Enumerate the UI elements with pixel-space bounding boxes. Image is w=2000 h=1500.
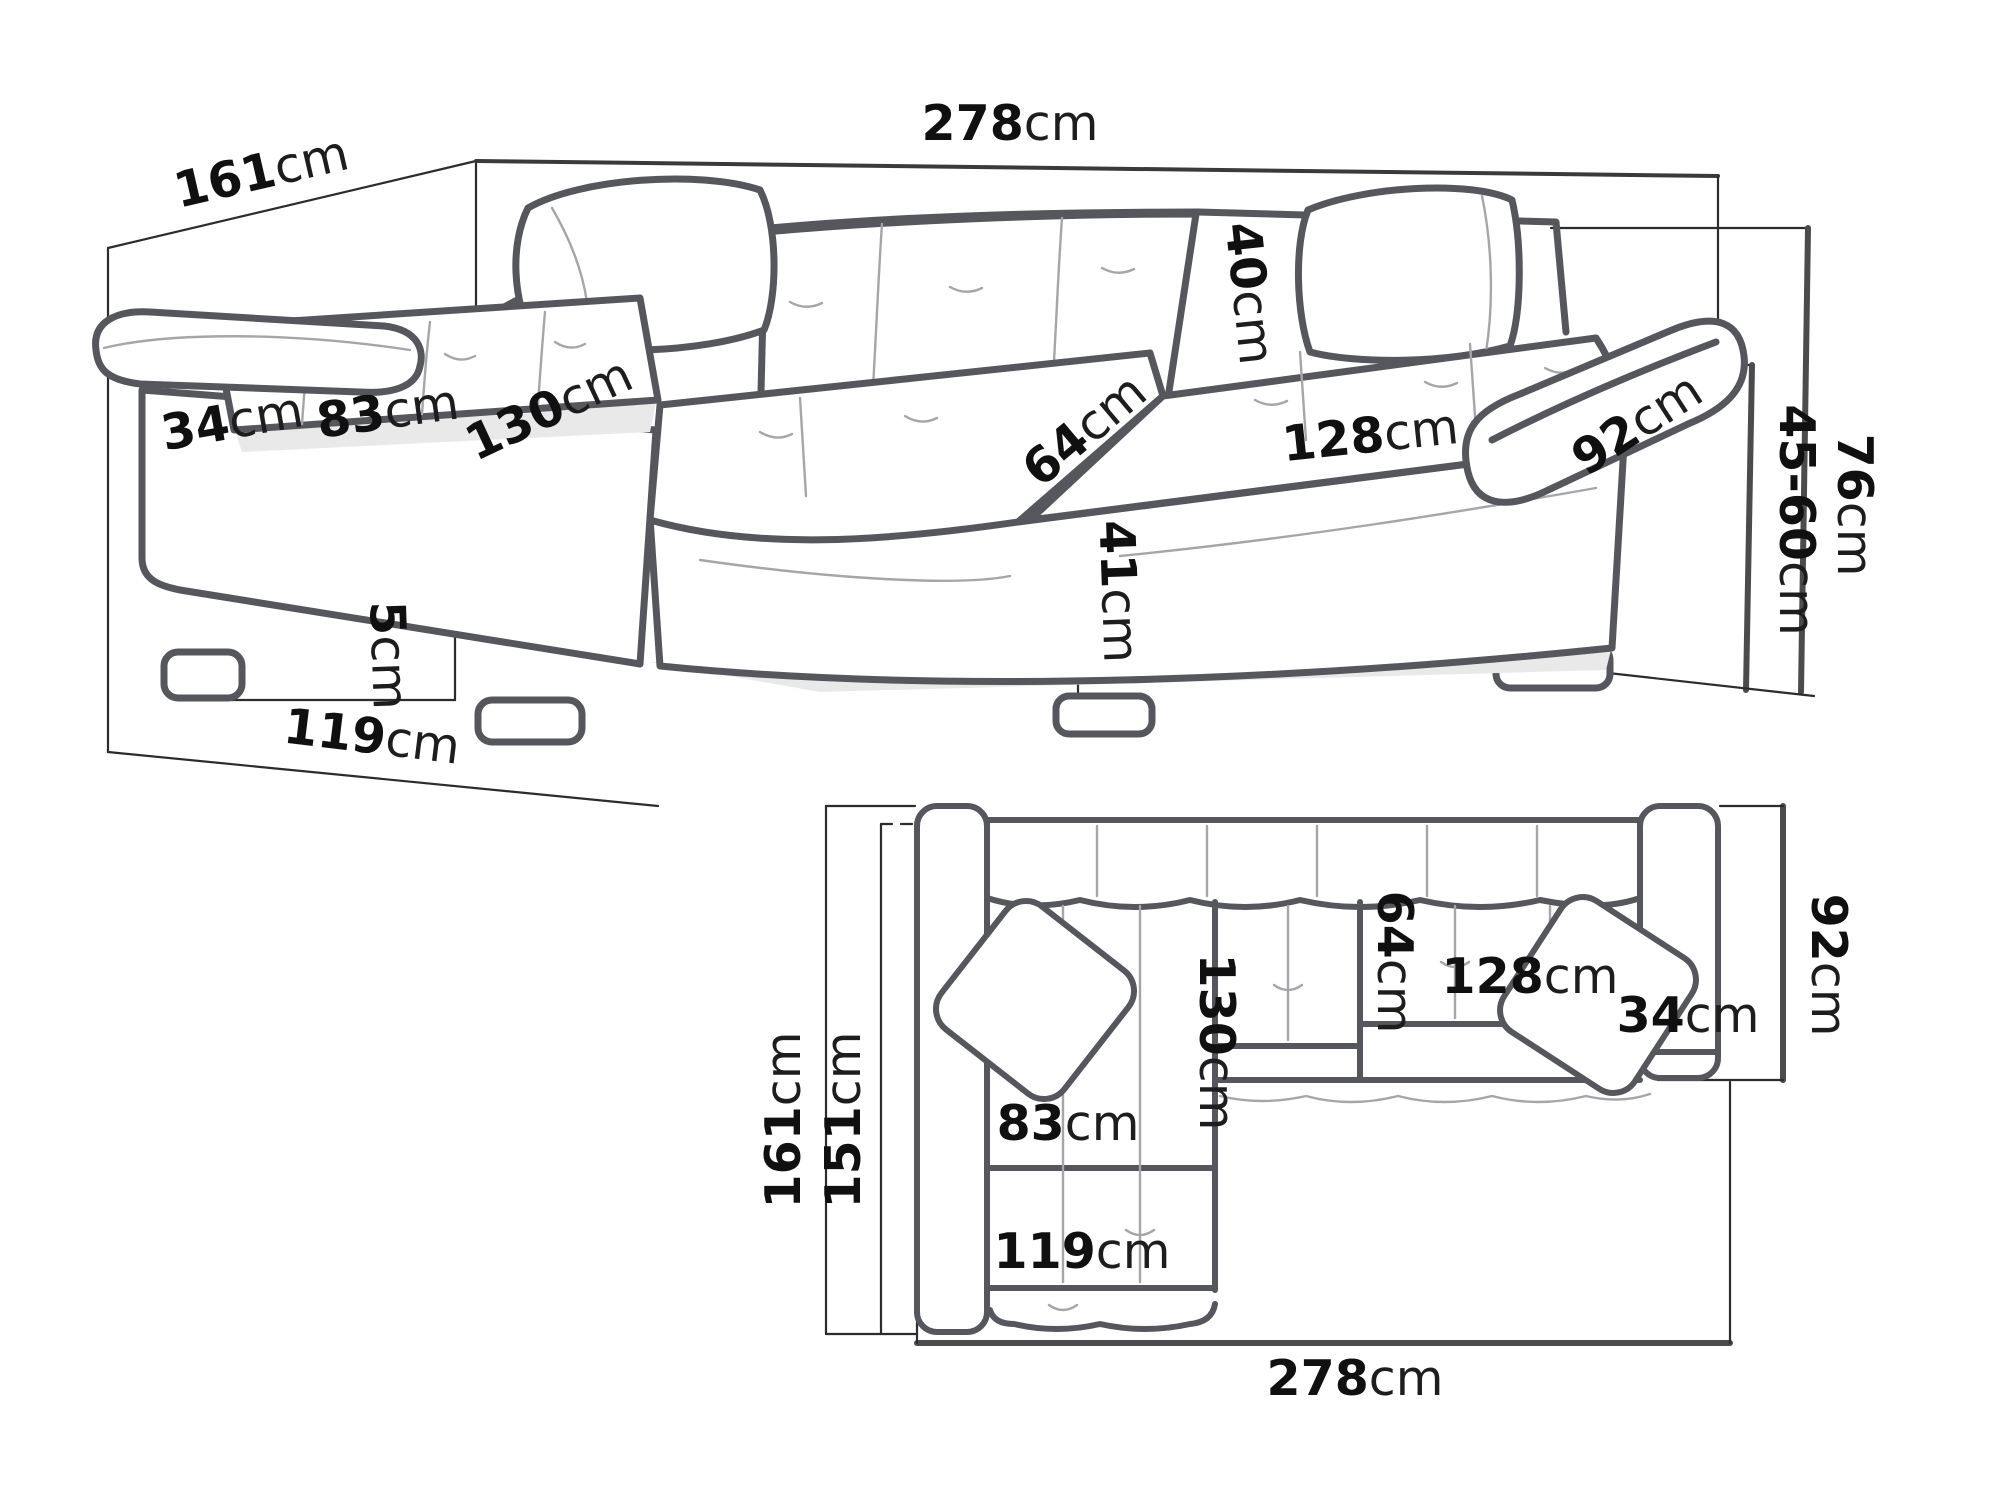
leg-chaise-front bbox=[478, 700, 582, 742]
plan-dim-label-92: 92cm bbox=[1800, 894, 1857, 1037]
dim-label-76: 76cm bbox=[1826, 434, 1883, 577]
leg-front-left bbox=[164, 652, 242, 698]
dim-label-161: 161cm bbox=[169, 124, 354, 219]
dim-label-278: 278cm bbox=[922, 95, 1099, 152]
armrest-left bbox=[96, 312, 422, 393]
plan-left-side-rail bbox=[917, 806, 987, 1332]
plan-dim-label-130: 130cm bbox=[1188, 954, 1245, 1131]
plan-dim-label-128: 128cm bbox=[1442, 948, 1619, 1005]
plan-dim-label-161: 161cm bbox=[755, 1032, 812, 1209]
dim-label-119: 119cm bbox=[281, 698, 464, 776]
plan-view: 161cm 151cm 130cm 64cm 128cm 34cm 83cm 1… bbox=[755, 806, 1857, 1407]
plan-dim-label-83: 83cm bbox=[997, 1095, 1140, 1152]
plan-seat-front-scallops bbox=[1220, 1094, 1650, 1102]
dim-label-45-60: 45-60cm bbox=[1768, 404, 1825, 635]
plan-back-cushions bbox=[987, 820, 1640, 907]
plan-dim-label-278: 278cm bbox=[1267, 1350, 1444, 1407]
plan-chaise-front-scallops bbox=[990, 1304, 1215, 1329]
plan-dim-label-151: 151cm bbox=[815, 1032, 872, 1209]
dim-label-5: 5cm bbox=[358, 600, 419, 711]
dim-line-278-top bbox=[476, 161, 1718, 176]
plan-dim-label-34: 34cm bbox=[1617, 987, 1760, 1044]
plan-dim-label-64: 64cm bbox=[1366, 891, 1423, 1034]
sofa-dimensions-diagram: 161cm 278cm 34cm 83cm 130cm 40cm 64cm 12… bbox=[0, 0, 2000, 1500]
diagram-svg: 161cm 278cm 34cm 83cm 130cm 40cm 64cm 12… bbox=[0, 0, 2000, 1500]
plan-dim-label-119: 119cm bbox=[994, 1223, 1171, 1280]
dim-label-40: 40cm bbox=[1214, 219, 1286, 367]
perspective-view: 161cm 278cm 34cm 83cm 130cm 40cm 64cm 12… bbox=[96, 95, 1883, 806]
floor-line bbox=[1608, 673, 1814, 696]
leg-middle bbox=[1056, 696, 1152, 734]
dim-label-41: 41cm bbox=[1088, 519, 1150, 664]
dim-line-45-60 bbox=[1746, 365, 1752, 690]
